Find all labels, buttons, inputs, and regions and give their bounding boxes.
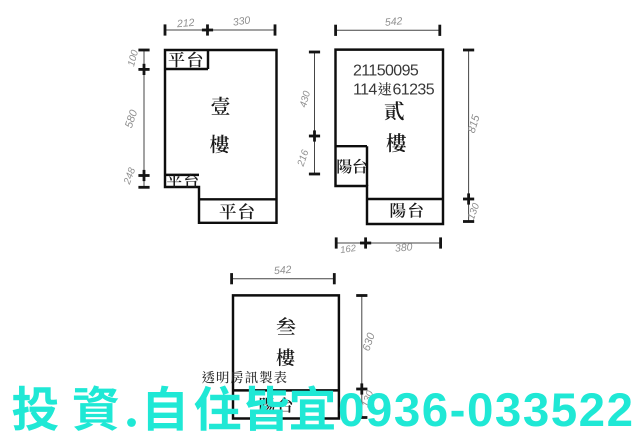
svg-text:21150095: 21150095 <box>353 63 419 80</box>
svg-text:380: 380 <box>394 241 413 254</box>
svg-text:248: 248 <box>122 166 139 187</box>
svg-text:100: 100 <box>126 48 141 67</box>
svg-text:330: 330 <box>232 14 251 28</box>
svg-text:61235: 61235 <box>393 82 435 99</box>
svg-text:216: 216 <box>296 148 312 169</box>
svg-text:630: 630 <box>361 331 378 353</box>
svg-text:162: 162 <box>340 243 358 256</box>
svg-text:542: 542 <box>384 15 403 29</box>
svg-text:430: 430 <box>298 89 313 108</box>
svg-text:212: 212 <box>175 17 195 31</box>
svg-text:114: 114 <box>353 82 377 99</box>
svg-text:0936-033522: 0936-033522 <box>338 384 635 437</box>
svg-text:580: 580 <box>123 108 140 130</box>
svg-text:542: 542 <box>273 264 292 277</box>
